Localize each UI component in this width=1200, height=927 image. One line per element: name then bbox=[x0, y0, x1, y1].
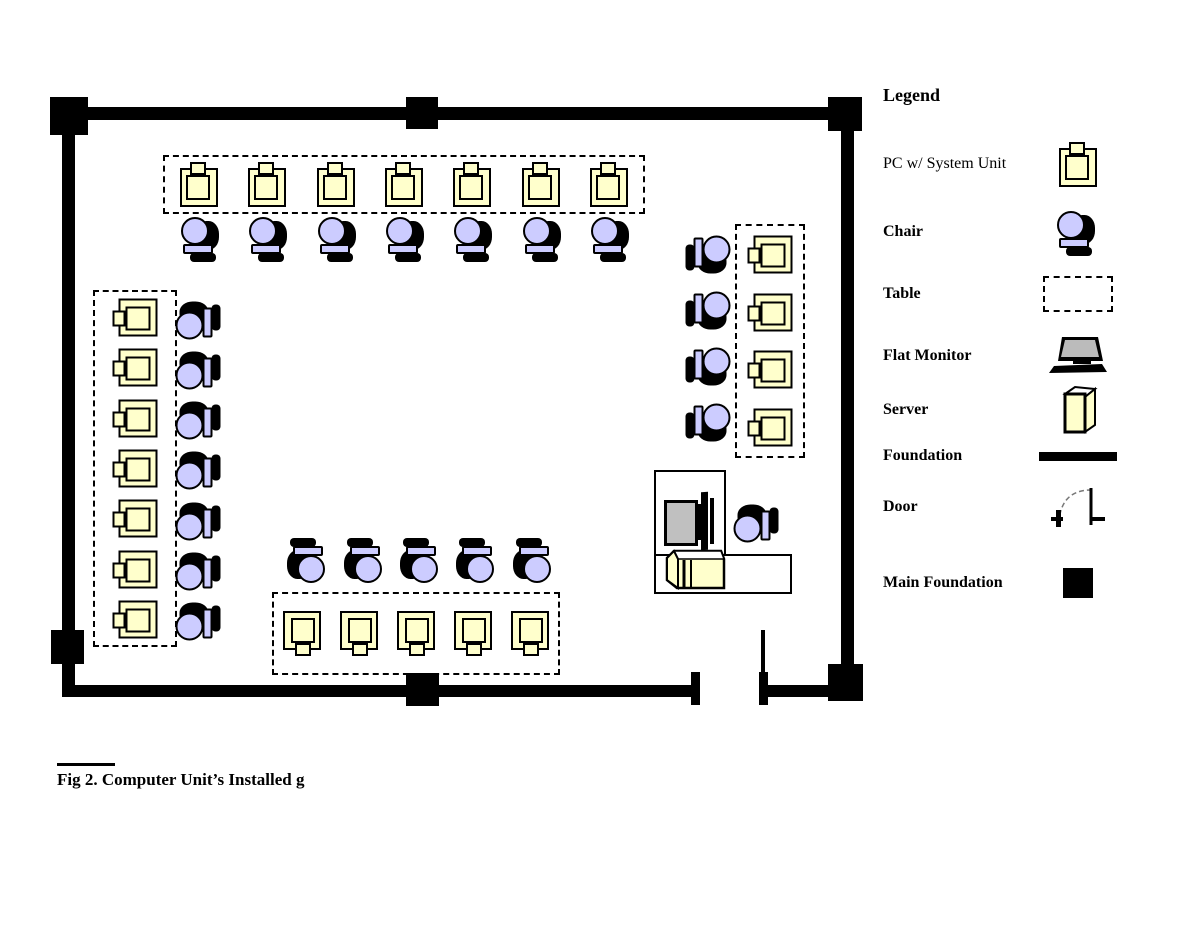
main-foundation-top-middle bbox=[406, 97, 438, 129]
chair-icon bbox=[174, 297, 221, 339]
wall-left bbox=[62, 107, 75, 697]
chair-icon bbox=[249, 215, 291, 262]
chair-row-bottom bbox=[276, 533, 558, 589]
legend-row-door: Door bbox=[883, 482, 1121, 532]
legend-row-main-foundation: Main Foundation bbox=[883, 566, 1121, 600]
legend-label-pc: PC w/ System Unit bbox=[883, 155, 1006, 173]
chair-icon bbox=[174, 549, 221, 591]
pc-icon bbox=[748, 407, 793, 447]
chair-row-top bbox=[168, 213, 646, 263]
pc-icon bbox=[247, 162, 287, 207]
chair-icon bbox=[174, 448, 221, 490]
chair-icon bbox=[591, 215, 633, 262]
pc-icon bbox=[384, 162, 424, 207]
legend-label-main-foundation: Main Foundation bbox=[883, 574, 1003, 592]
pc-icon bbox=[113, 549, 158, 589]
legend-row-pc: PC w/ System Unit bbox=[883, 138, 1121, 190]
chair-icon bbox=[686, 235, 733, 277]
server-icon bbox=[1035, 385, 1121, 435]
pc-icon bbox=[113, 448, 158, 488]
chair-icon bbox=[181, 215, 223, 262]
pc-icon bbox=[179, 162, 219, 207]
legend-label-door: Door bbox=[883, 498, 918, 516]
flat-monitor-icon bbox=[1035, 335, 1121, 377]
server-icon bbox=[658, 548, 728, 594]
legend-label-table: Table bbox=[883, 285, 921, 303]
main-foundation-top-left bbox=[50, 97, 88, 135]
legend-label-server: Server bbox=[883, 401, 928, 419]
chair-icon bbox=[318, 215, 360, 262]
legend-row-table: Table bbox=[883, 274, 1121, 314]
wall-top bbox=[60, 107, 856, 120]
pc-icon bbox=[339, 611, 379, 656]
chair-icon bbox=[174, 599, 221, 641]
main-foundation-top-right bbox=[828, 97, 862, 131]
legend-row-chair: Chair bbox=[883, 206, 1121, 258]
figure-caption: Fig 2. Computer Unit’s Installed g bbox=[57, 770, 304, 790]
wall-right bbox=[841, 107, 854, 680]
door-post-left bbox=[691, 672, 700, 705]
pc-icon bbox=[396, 611, 436, 656]
chair-row-left bbox=[171, 293, 223, 645]
main-foundation-bottom-right bbox=[828, 664, 863, 701]
chair-icon bbox=[340, 538, 382, 585]
pc-icon bbox=[113, 600, 158, 640]
pc-icon bbox=[1035, 142, 1121, 187]
pc-icon bbox=[113, 499, 158, 539]
instructor-chair-slot bbox=[734, 498, 778, 546]
main-foundation-bottom-middle bbox=[406, 673, 439, 706]
table-icon bbox=[1035, 276, 1121, 312]
chair-icon bbox=[283, 538, 325, 585]
table-right bbox=[735, 224, 805, 458]
foundation-icon bbox=[1035, 452, 1121, 461]
door-icon bbox=[1035, 483, 1121, 531]
chair-icon bbox=[732, 501, 779, 543]
wall-bottom-left-segment bbox=[62, 685, 700, 697]
pc-icon bbox=[589, 162, 629, 207]
pc-icon bbox=[113, 297, 158, 337]
floor-plan-page: Legend PC w/ System Unit Chair Table Fla… bbox=[0, 0, 1200, 927]
pc-icon bbox=[1058, 142, 1098, 187]
chair-icon bbox=[1057, 209, 1099, 256]
legend-row-foundation: Foundation bbox=[883, 446, 1121, 466]
pc-icon bbox=[453, 611, 493, 656]
chair-icon bbox=[454, 215, 496, 262]
table-left bbox=[93, 290, 177, 647]
legend-row-server: Server bbox=[883, 384, 1121, 436]
chair-icon bbox=[386, 215, 428, 262]
legend-row-flat-monitor: Flat Monitor bbox=[883, 334, 1121, 378]
pc-icon bbox=[521, 162, 561, 207]
table-top bbox=[163, 155, 645, 214]
chair-icon bbox=[174, 498, 221, 540]
pc-icon bbox=[316, 162, 356, 207]
pc-icon bbox=[748, 350, 793, 390]
door-leaf bbox=[761, 630, 765, 675]
pc-icon bbox=[748, 292, 793, 332]
pc-icon bbox=[452, 162, 492, 207]
main-foundation-icon bbox=[1035, 568, 1121, 598]
legend-label-flat-monitor: Flat Monitor bbox=[883, 347, 971, 365]
pc-icon bbox=[748, 235, 793, 275]
chair-icon bbox=[174, 398, 221, 440]
chair-icon bbox=[396, 538, 438, 585]
pc-icon bbox=[113, 348, 158, 388]
chair-icon bbox=[686, 291, 733, 333]
chair-icon bbox=[509, 538, 551, 585]
table-bottom bbox=[272, 592, 560, 675]
legend-label-chair: Chair bbox=[883, 223, 923, 241]
flat-monitor-icon bbox=[664, 492, 714, 550]
chair-icon bbox=[523, 215, 565, 262]
chair-icon bbox=[1035, 209, 1121, 256]
door-post-right bbox=[759, 672, 768, 705]
chair-row-right bbox=[684, 228, 734, 452]
main-foundation-bottom-left bbox=[51, 630, 84, 664]
pc-icon bbox=[282, 611, 322, 656]
chair-icon bbox=[686, 347, 733, 389]
legend-title: Legend bbox=[883, 85, 940, 106]
legend-label-foundation: Foundation bbox=[883, 447, 962, 465]
chair-icon bbox=[174, 347, 221, 389]
chair-icon bbox=[452, 538, 494, 585]
pc-icon bbox=[510, 611, 550, 656]
pc-icon bbox=[113, 398, 158, 438]
chair-icon bbox=[686, 403, 733, 445]
caption-divider bbox=[57, 763, 115, 766]
